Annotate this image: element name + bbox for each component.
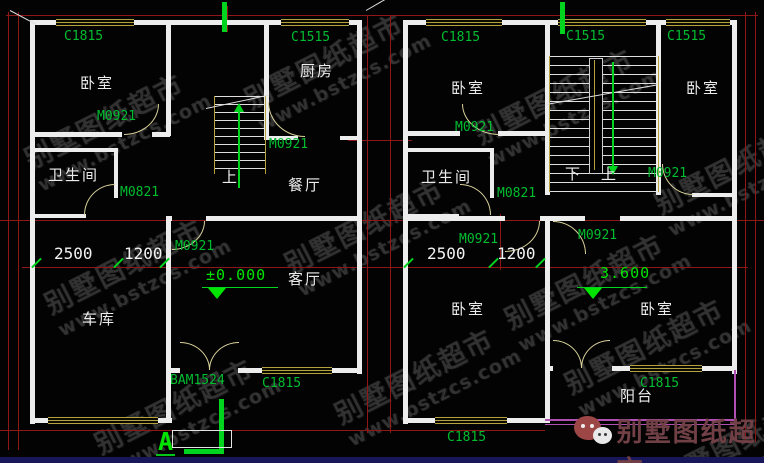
brand-text: 别墅图纸超市 [617,414,764,463]
footer-logo-layer: 别墅图纸超市 [0,0,764,463]
cad-floorplan-canvas: 别墅图纸超市www.bstzcs.com别墅图纸超市www.bstzcs.com… [0,0,764,463]
wechat-bubble-small [593,427,612,444]
wechat-bubbles-icon [574,414,613,454]
brand-logo: 别墅图纸超市 [574,414,764,463]
